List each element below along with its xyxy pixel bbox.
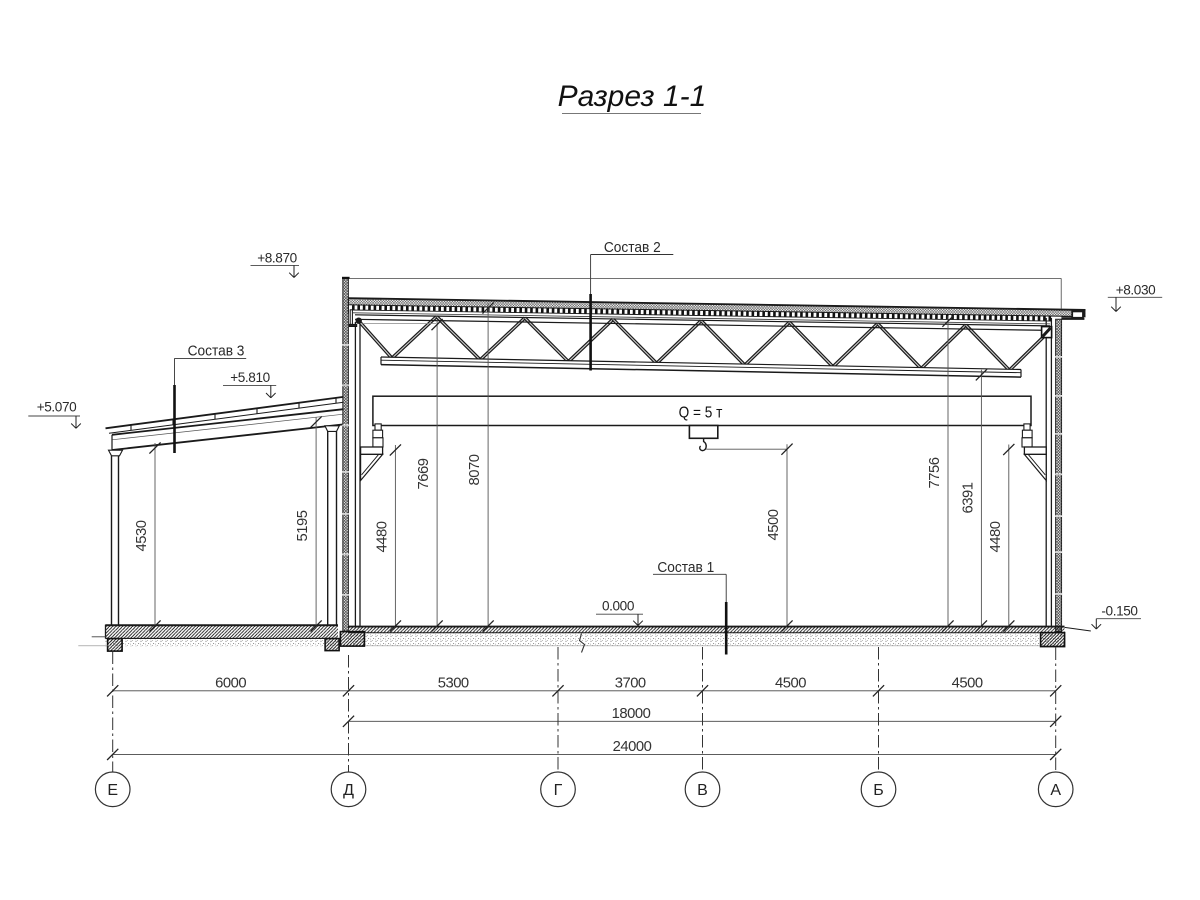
svg-text:Г: Г bbox=[554, 782, 563, 799]
svg-text:+5.810: +5.810 bbox=[230, 370, 270, 385]
svg-text:0.000: 0.000 bbox=[602, 599, 635, 614]
svg-text:Состав 2: Состав 2 bbox=[604, 239, 661, 256]
svg-text:6000: 6000 bbox=[215, 675, 246, 691]
svg-text:Состав 3: Состав 3 bbox=[188, 343, 245, 360]
svg-text:7756: 7756 bbox=[927, 457, 943, 488]
svg-text:Д: Д bbox=[343, 782, 354, 799]
svg-text:Состав 1: Состав 1 bbox=[657, 559, 714, 576]
svg-text:Q = 5 т: Q = 5 т bbox=[679, 405, 723, 422]
svg-text:4500: 4500 bbox=[775, 675, 806, 691]
svg-text:8070: 8070 bbox=[467, 454, 483, 485]
svg-text:В: В bbox=[697, 782, 708, 799]
svg-text:+8.870: +8.870 bbox=[257, 250, 297, 265]
svg-text:Разрез 1-1: Разрез 1-1 bbox=[558, 80, 707, 113]
svg-text:4480: 4480 bbox=[988, 521, 1004, 552]
svg-text:Б: Б bbox=[873, 782, 884, 799]
svg-text:6391: 6391 bbox=[960, 482, 976, 513]
svg-text:4480: 4480 bbox=[374, 521, 390, 552]
svg-text:4530: 4530 bbox=[134, 520, 150, 551]
svg-text:18000: 18000 bbox=[612, 706, 651, 722]
svg-text:А: А bbox=[1050, 782, 1061, 799]
svg-text:4500: 4500 bbox=[952, 675, 983, 691]
svg-text:5195: 5195 bbox=[295, 510, 311, 541]
svg-text:5300: 5300 bbox=[438, 675, 469, 691]
svg-text:3700: 3700 bbox=[615, 675, 646, 691]
svg-text:+5.070: +5.070 bbox=[37, 400, 77, 415]
svg-text:-0.150: -0.150 bbox=[1101, 603, 1138, 618]
svg-text:+8.030: +8.030 bbox=[1116, 282, 1156, 297]
svg-text:Е: Е bbox=[107, 782, 118, 799]
svg-text:24000: 24000 bbox=[613, 739, 652, 755]
svg-text:4500: 4500 bbox=[766, 509, 782, 540]
svg-text:7669: 7669 bbox=[416, 458, 432, 489]
